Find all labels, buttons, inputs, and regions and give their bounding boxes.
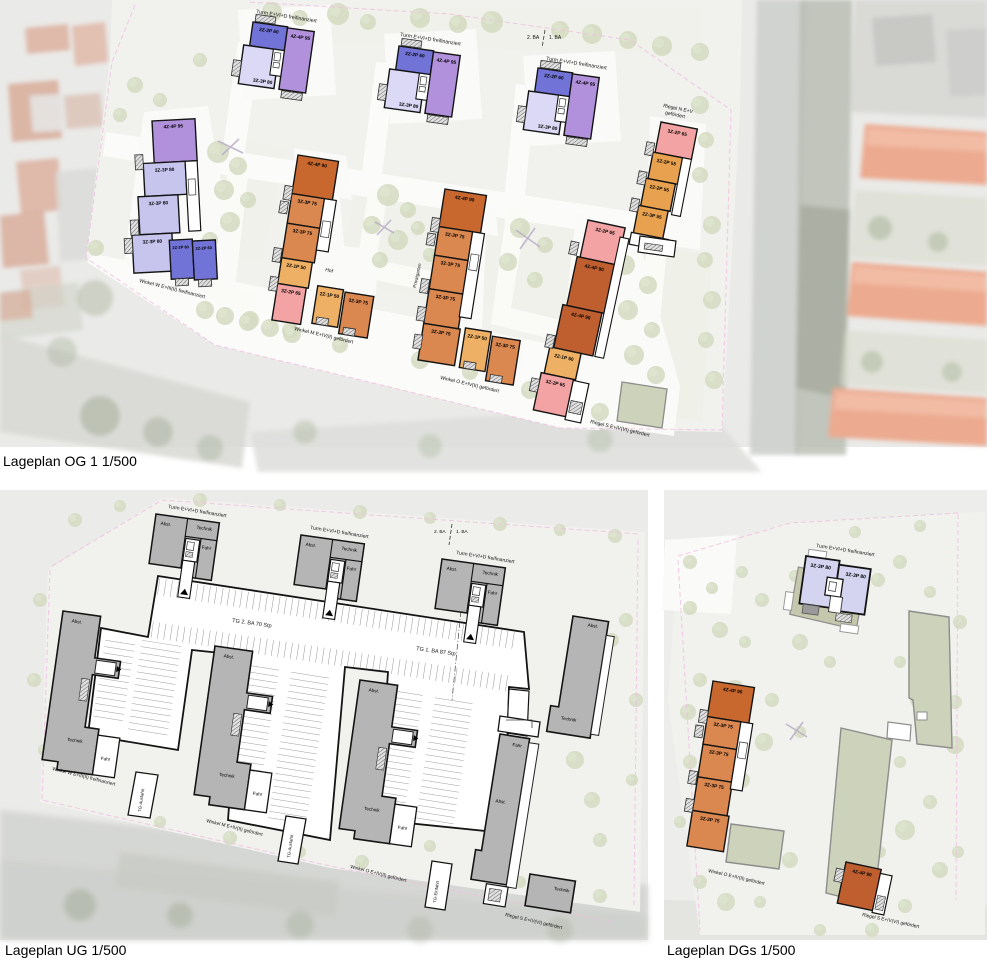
- svg-text:2. BA: 2. BA: [527, 35, 540, 41]
- svg-text:3Z-3P 80: 3Z-3P 80: [148, 200, 168, 207]
- svg-text:1. BA: 1. BA: [549, 35, 562, 41]
- svg-text:2Z-2P 60: 2Z-2P 60: [195, 245, 212, 251]
- svg-text:1. BA: 1. BA: [456, 529, 469, 535]
- svg-text:2Z-2P 60: 2Z-2P 60: [172, 244, 189, 250]
- svg-text:Lageplan OG 1 1/500: Lageplan OG 1 1/500: [3, 453, 137, 469]
- svg-text:Lageplan UG 1/500: Lageplan UG 1/500: [5, 942, 127, 958]
- svg-text:3Z-3P 80: 3Z-3P 80: [155, 167, 175, 174]
- svg-text:3Z-3P 80: 3Z-3P 80: [142, 239, 162, 246]
- svg-text:Lageplan DGs 1/500: Lageplan DGs 1/500: [667, 942, 796, 958]
- svg-text:4Z-4P 95: 4Z-4P 95: [163, 123, 183, 130]
- svg-text:2. BA: 2. BA: [434, 529, 447, 535]
